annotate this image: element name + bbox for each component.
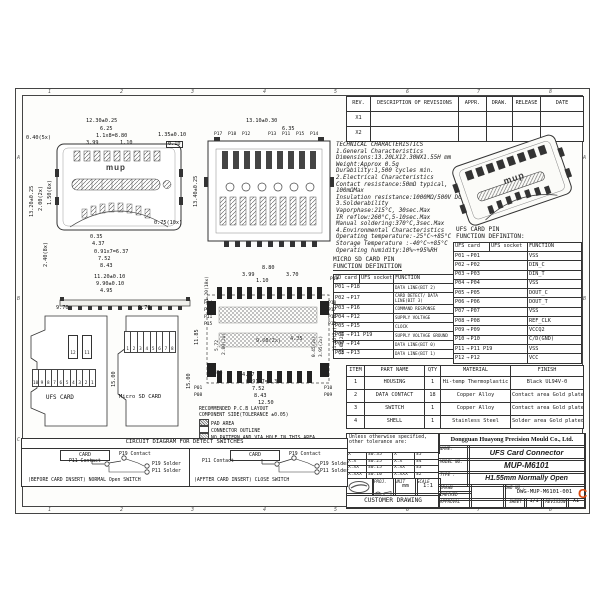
column-header: FUNCTION xyxy=(394,275,454,284)
card-pin: P10 xyxy=(455,336,464,342)
part-name-cell: SHELL xyxy=(365,416,425,429)
pcb-legend-line: COMPONENT SIDE(TOLERANCE ±0.05) xyxy=(199,413,289,418)
dimension-label: 13.20±0.25 xyxy=(30,186,35,217)
item-cell: 3 xyxy=(347,403,365,416)
dimension-label: 8.43 xyxy=(254,394,267,399)
card-pin: P05 xyxy=(455,290,464,296)
socket-pin: P18 xyxy=(351,284,360,290)
function-cell: VSS xyxy=(528,344,582,353)
zone-marker: 4 xyxy=(263,507,266,513)
open-view-drawing xyxy=(204,135,334,249)
dimension-label: 0.75(10x) xyxy=(154,221,182,226)
socket-pin: P13 xyxy=(351,350,360,356)
dimension-label: 11.85 xyxy=(195,329,200,345)
pin-label: P19 xyxy=(330,278,338,283)
dimension-label: 1.50(6x) xyxy=(48,180,53,205)
zone-marker: 6 xyxy=(406,89,409,95)
divider xyxy=(189,448,190,486)
scale-value: 1:1 xyxy=(416,484,440,490)
sd-pin-function-table: SD card UFS socket FUNCTION P01→P18DATA … xyxy=(333,274,454,359)
zone-marker: 5 xyxy=(334,507,337,513)
material-cell: Copper Alloy xyxy=(441,403,511,416)
ufs-pin-table-title: FUNCTION DEFINITON: xyxy=(456,234,525,240)
dimension-label: 12.50 xyxy=(258,401,274,406)
solder-label: P11 Solder xyxy=(320,469,349,474)
pin-number: 12 xyxy=(70,351,75,358)
function-cell: SUPPLY VOLTAGE GROUND xyxy=(394,332,454,341)
qty-cell: 1 xyxy=(425,403,441,416)
dimension-label: 0.35 xyxy=(90,235,103,240)
zone-marker: A xyxy=(17,155,20,161)
card-pin: P04 xyxy=(335,314,344,320)
column-header: UFS card xyxy=(454,243,490,252)
pin-map-cell: P01→P01 xyxy=(454,252,528,261)
dimension-label: 9.70 xyxy=(138,306,151,311)
contact-label: P11 Contact xyxy=(69,459,101,464)
detect-switch-diagram: CIRCUIT DIAGRAM FOR DETECT SWITCHES CARD… xyxy=(21,438,348,487)
part-name-cell: SWITCH xyxy=(365,403,425,416)
dimension-label: 7.52 xyxy=(98,257,111,262)
function-cell: DATA LINE(BIT 0) xyxy=(394,341,454,350)
pin-label: P08 xyxy=(194,394,202,399)
approval-label: APPROVAL xyxy=(439,499,471,504)
pin-map-cell: P11→P11 P19 xyxy=(454,344,528,353)
function-cell: DATA LINE(BIT 2) xyxy=(394,284,454,293)
zone-marker: 1 xyxy=(48,507,51,513)
sd-pin-table-title: FUNCTION DEFINITION xyxy=(333,264,402,271)
dimension-label: 2.40(8x) xyxy=(44,242,49,267)
dwg-number: DWG-MUP-M6101-001 xyxy=(504,490,585,496)
ufs-pin-function-table: UFS card UFS socket FUNCTION P01→P01VSS … xyxy=(453,242,582,364)
pin-label: P09 xyxy=(324,394,332,399)
column-header: PART NAME xyxy=(365,366,425,377)
card-pin: P06 xyxy=(455,299,464,305)
function-cell: COMMAND RESPONSE xyxy=(394,305,454,314)
column-header: FUNCTION xyxy=(528,243,582,252)
material-cell: Hi-temp Thermoplastic xyxy=(441,377,511,390)
zone-marker: B xyxy=(17,296,20,302)
finish-cell: Solder area Gold plated xyxy=(511,416,584,429)
table-row: X1 xyxy=(347,112,584,127)
table-row: P06→P06DOUT_T xyxy=(454,298,582,307)
dimension-label: 1.1x8=8.80 xyxy=(96,134,127,139)
table-row: 2 DATA CONTACT 18 Copper Alloy Contact a… xyxy=(347,390,584,403)
function-cell: DIN_T xyxy=(528,270,582,279)
pin-number: 11 xyxy=(84,351,89,358)
circuit-caption: (BEFORE CARD INSERT) NORMAL Open SWITCH xyxy=(28,478,141,483)
revision-label: REVISION xyxy=(542,499,568,504)
mup-logo: mup xyxy=(106,163,126,172)
card-pin: P03 xyxy=(335,305,344,311)
ufs-card-pin: 12 xyxy=(68,335,78,359)
empty-cell xyxy=(459,112,487,127)
contact-label: P19 Contact xyxy=(119,452,151,457)
zone-marker: 2 xyxy=(120,89,123,95)
zone-marker: B xyxy=(583,296,586,302)
pin-number: 1 xyxy=(124,331,131,353)
proj-label: PROJ. xyxy=(373,479,395,484)
dimension-label: 1.10 xyxy=(256,279,269,284)
table-row: P04→P04VSS xyxy=(454,279,582,288)
table-row: P06→P11 P19SUPPLY VOLTAGE GROUND xyxy=(334,332,454,341)
rev-header: DESCRIPTION OF REVISIONS xyxy=(371,97,459,112)
table-row: P11→P11 P19VSS xyxy=(454,344,582,353)
pin-map-cell: P02→P02 xyxy=(454,261,528,270)
revision-label-cell: REVISION xyxy=(541,498,569,509)
dimension-label: 4.95 xyxy=(100,289,113,294)
zone-marker: 3 xyxy=(191,89,194,95)
card-pin: P01 xyxy=(335,284,344,290)
zone-marker: 3 xyxy=(191,507,194,513)
function-cell: CARD DETECT/ DATA LINE(BIT 3) xyxy=(394,293,454,305)
card-pin: P03 xyxy=(455,271,464,277)
finish-cell: Contact area Gold plated xyxy=(511,403,584,416)
pcb-layout-drawing xyxy=(201,285,336,393)
pin-map-cell: P02→P17 xyxy=(334,293,394,305)
socket-pin: P17 xyxy=(351,295,360,301)
rev-cell: X1 xyxy=(347,112,371,127)
table-row: P12→P12VCC xyxy=(454,354,582,363)
socket-pin: P11 P19 xyxy=(471,346,493,352)
type-label: TYPE : xyxy=(439,472,469,477)
dimension-label: 6.25 xyxy=(100,127,113,132)
table-row: P03→P16COMMAND RESPONSE xyxy=(334,305,454,314)
pin-map-cell: P07→P07 xyxy=(454,307,528,316)
pin-map-cell: P04→P04 xyxy=(454,279,528,288)
function-cell: DIN_C xyxy=(528,261,582,270)
item-cell: 1 xyxy=(347,377,365,390)
socket-pin: P09 xyxy=(471,327,480,333)
function-cell: CLOCK xyxy=(394,323,454,332)
pin-map-cell: P05→P05 xyxy=(454,289,528,298)
rev-header: DRAW. xyxy=(487,97,513,112)
column-header: ITEM xyxy=(347,366,365,377)
name-label: NAME: xyxy=(439,446,469,451)
card-pin: P09 xyxy=(455,327,464,333)
empty-cell xyxy=(371,127,459,142)
table-row: P01→P01VSS xyxy=(454,252,582,261)
parts-table: ITEM PART NAME QTY MATERIAL FINISH 1 HOU… xyxy=(346,365,584,429)
card-pin: P12 xyxy=(455,355,464,361)
pin-map-cell: P09→P09 xyxy=(454,326,528,335)
card-pin: P01 xyxy=(455,253,464,259)
empty-cell xyxy=(371,112,459,127)
table-row: P05→P15CLOCK xyxy=(334,323,454,332)
tolerance-note-cell: Unless otherwise specified, other tolera… xyxy=(346,433,440,454)
zone-marker: 2 xyxy=(120,507,123,513)
column-header: MATERIAL xyxy=(441,366,511,377)
pad-area-swatch-icon xyxy=(199,419,209,426)
socket-pin: P14 xyxy=(351,341,360,347)
function-cell: C/D(GND) xyxy=(528,335,582,344)
dimension-label: 12.60(2x) xyxy=(341,331,346,355)
rev-header: RELEASE xyxy=(513,97,541,112)
pin-map-cell: P04→P12 xyxy=(334,314,394,323)
company-logo xyxy=(347,480,371,494)
table-row: P02→P17CARD DETECT/ DATA LINE(BIT 3) xyxy=(334,293,454,305)
dimension-label: 11.20±0.10 xyxy=(94,275,125,280)
finish-cell: Contact area Gold plated xyxy=(511,390,584,403)
blank-cell xyxy=(469,498,506,509)
zone-marker: C xyxy=(17,437,20,443)
rev-header: APPR. xyxy=(459,97,487,112)
contact-label: P11 Contact xyxy=(202,459,234,464)
table-row: P08→P08REF_CLK xyxy=(454,317,582,326)
function-cell: VCC xyxy=(528,354,582,363)
function-cell: SUPPLY VOLTAGE xyxy=(394,314,454,323)
zone-marker: A xyxy=(583,155,586,161)
table-row: 1 HOUSING 1 Hi-temp Thermoplastic Black … xyxy=(347,377,584,390)
drawing-sheet: 1 2 3 4 5 6 7 8 1 2 3 4 5 6 7 8 A B C A … xyxy=(15,88,590,514)
function-cell: DOUT_C xyxy=(528,289,582,298)
solder-label: P19 Solder xyxy=(152,462,181,467)
table-row: P01→P18DATA LINE(BIT 2) xyxy=(334,284,454,293)
dimension-label: 12.30±0.25 xyxy=(86,119,117,124)
qty-cell: 18 xyxy=(425,390,441,403)
dimension-label: 1.35±0.10 xyxy=(158,133,186,138)
empty-cell xyxy=(513,112,541,127)
page: 1 2 3 4 5 6 7 8 1 2 3 4 5 6 7 8 A B C A … xyxy=(0,0,600,600)
ufs-card-label: UFS CARD xyxy=(46,395,74,401)
pin-map-cell: P03→P16 xyxy=(334,305,394,314)
approval-cell: APPROVAL xyxy=(438,498,472,509)
card-pin: P02 xyxy=(455,262,464,268)
socket-pin: P06 xyxy=(471,299,480,305)
table-row: P08→P13DATA LINE(BIT 1) xyxy=(334,350,454,359)
dimension-label: 3.99 xyxy=(242,273,255,278)
finish-cell: Black UL94V-0 xyxy=(511,377,584,390)
socket-pin: P05 xyxy=(471,290,480,296)
socket-pin: P15 xyxy=(351,323,360,329)
pin-map-cell: P06→P06 xyxy=(454,298,528,307)
dimension-label: 13.10±0.30 xyxy=(246,119,277,124)
table-row: P07→P07VSS xyxy=(454,307,582,316)
qty-cell: 1 xyxy=(425,377,441,390)
card-pin: P02 xyxy=(335,295,344,301)
table-row: P10→P10C/D(GND) xyxy=(454,335,582,344)
pin-map-cell: P08→P08 xyxy=(454,317,528,326)
table-row: 3 SWITCH 1 Copper Alloy Contact area Gol… xyxy=(347,403,584,416)
socket-pin: P10 xyxy=(471,336,480,342)
socket-pin: P01 xyxy=(471,253,480,259)
table-row: P03→P03DIN_T xyxy=(454,270,582,279)
socket-pin: P02 xyxy=(471,262,480,268)
function-cell: VSS xyxy=(528,252,582,261)
empty-cell xyxy=(487,112,513,127)
table-row: P02→P02DIN_C xyxy=(454,261,582,270)
dimension-label: 3.99 xyxy=(86,141,99,146)
column-header: QTY xyxy=(425,366,441,377)
pin-number: 8 xyxy=(170,331,176,353)
socket-pin: P03 xyxy=(471,271,480,277)
drawn-label: DRAWN xyxy=(439,485,471,490)
dimension-label: 0.40(5x) xyxy=(26,136,51,141)
divider xyxy=(22,448,347,449)
pin-number: 1 xyxy=(90,369,96,387)
socket-pin: P08 xyxy=(471,318,480,324)
zone-marker: 7 xyxy=(477,89,480,95)
part-name-cell: DATA CONTACT xyxy=(365,390,425,403)
ufs-card-pin-row: 10987654321 xyxy=(32,369,96,387)
dimension-label: 8.80 xyxy=(262,266,275,271)
checked-label: CHECKED xyxy=(439,492,471,497)
connector-outline-swatch-icon xyxy=(199,426,209,433)
pin-map-cell: P01→P18 xyxy=(334,284,394,293)
function-cell: DOUT_T xyxy=(528,298,582,307)
dimension-label: 13.40±0.25 xyxy=(194,176,199,207)
column-header: FINISH xyxy=(511,366,584,377)
table-row: P09→P09VCCQ2 xyxy=(454,326,582,335)
contact-label: P19 Contact xyxy=(289,452,321,457)
title-block: Unless otherwise specified, other tolera… xyxy=(346,433,585,508)
socket-pin: P11 P19 xyxy=(351,332,373,338)
dimension-label: 4.37 xyxy=(92,242,105,247)
zone-marker: 5 xyxy=(334,89,337,95)
function-cell: VSS xyxy=(528,307,582,316)
pin-map-cell: P10→P10 xyxy=(454,335,528,344)
pin-map-cell: P03→P03 xyxy=(454,270,528,279)
dimension-label: 8.43 xyxy=(100,264,113,269)
rev-header: DATE xyxy=(541,97,584,112)
tolerance-table: X±0.35X°±5° X.X±0.25X.X°±4° X.XX±0.15X.X… xyxy=(346,452,439,479)
card-pin: P11 xyxy=(455,346,464,352)
table-row: P05→P05DOUT_C xyxy=(454,289,582,298)
function-cell: REF_CLK xyxy=(528,317,582,326)
rev-header: REV. xyxy=(347,97,371,112)
material-cell: Copper Alloy xyxy=(441,390,511,403)
sd-card-label: Micro SD CARD xyxy=(119,395,161,401)
dimension-label: 15.00 xyxy=(187,373,192,389)
dimension-label: 9.90±0.10 xyxy=(96,282,124,287)
socket-pin: P04 xyxy=(471,280,480,286)
material-cell: Stainless Steel xyxy=(441,416,511,429)
circuit-title: CIRCUIT DIAGRAM FOR DETECT SWITCHES xyxy=(22,440,347,446)
table-row: 4 SHELL 1 Stainless Steel Solder area Go… xyxy=(347,416,584,429)
pin-map-cell: P12→P12 xyxy=(454,354,528,363)
function-cell: VCCQ2 xyxy=(528,326,582,335)
card-pin: P07 xyxy=(455,308,464,314)
dimension-label: 2.00(2x) xyxy=(39,186,44,211)
socket-pin: P16 xyxy=(351,305,360,311)
model-label: MODEL NO. xyxy=(439,459,469,464)
pcb-legend-line: RECOMMENDED P.C.B LAYOUT xyxy=(199,407,268,412)
card-pin: P08 xyxy=(455,318,464,324)
socket-pin: P07 xyxy=(471,308,480,314)
function-cell: VSS xyxy=(528,279,582,288)
drawing-type-cell: CUSTOMER DRAWING xyxy=(346,493,440,509)
zone-marker: 8 xyxy=(549,89,552,95)
item-cell: 2 xyxy=(347,390,365,403)
dimension-label: 0.91x7=6.37 xyxy=(94,250,128,255)
qty-cell: 1 xyxy=(425,416,441,429)
table-row: P07→P14DATA LINE(BIT 0) xyxy=(334,341,454,350)
column-header: UFS socket xyxy=(490,243,528,252)
ufs-card-pin: 11 xyxy=(82,335,92,359)
function-cell: DATA LINE(BIT 1) xyxy=(394,350,454,359)
table-row: P04→P12SUPPLY VOLTAGE xyxy=(334,314,454,323)
side-view-drawing xyxy=(58,297,193,311)
card-pin: P04 xyxy=(455,280,464,286)
dimension-label: 1.10 xyxy=(120,141,133,146)
item-cell: 4 xyxy=(347,416,365,429)
column-header: UFS socket xyxy=(360,275,394,284)
solder-label: P19 Solder xyxy=(320,462,349,467)
circuit-caption: (AFFTER CARD INSERT) CLOSE SWITCH xyxy=(194,478,289,483)
flatness-tolerance: 0.10 xyxy=(166,141,183,148)
rev-cell: X2 xyxy=(347,127,371,142)
zone-marker: 4 xyxy=(263,89,266,95)
sd-card-pin-row: 12345678 xyxy=(124,331,176,353)
tolerance-note: Unless otherwise specified, other tolera… xyxy=(349,435,435,445)
corner-watermark: C xyxy=(578,486,587,501)
zone-marker: 1 xyxy=(48,89,51,95)
socket-pin: P12 xyxy=(471,355,480,361)
unit-value: mm xyxy=(394,484,417,490)
sheet-label: SHEET xyxy=(504,499,526,504)
socket-pin: P12 xyxy=(351,314,360,320)
part-name-cell: HOUSING xyxy=(365,377,425,390)
solder-label: P11 Solder xyxy=(152,469,181,474)
dimension-label: 9.70 xyxy=(56,306,69,311)
pin-number: 10 xyxy=(32,369,39,387)
empty-cell xyxy=(541,112,584,127)
customer-drawing-label: CUSTOMER DRAWING xyxy=(347,494,439,507)
dimension-label: 3.70 xyxy=(286,273,299,278)
